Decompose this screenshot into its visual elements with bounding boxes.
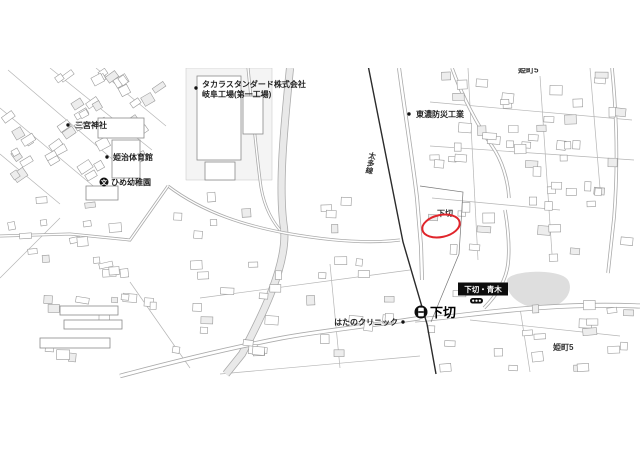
district-label-himecho5: 姫町5: [553, 342, 574, 352]
poi-label-factory-line1: タカラスタンダード株式会社: [202, 79, 306, 89]
train-station-icon: [415, 306, 428, 319]
traffic-signal-icon: [470, 298, 483, 304]
poi-label-gym: 姫治体育館: [113, 152, 153, 162]
district-label-top-clipped: 姫町5: [518, 68, 539, 75]
poi-label-clinic: はたのクリニック: [334, 317, 398, 327]
poi-dot-shrine: [66, 123, 69, 126]
pond: [507, 272, 570, 308]
road-network: [0, 68, 640, 376]
poi-label-shrine: 三宮神社: [75, 120, 107, 130]
district-label-shimogiri: 下切: [437, 208, 453, 218]
railway-name-label: 太多線: [364, 150, 378, 176]
poi-dot-disaster-company: [407, 112, 410, 115]
intersection-sign: 下切・青木: [458, 283, 508, 304]
poi-label-factory-line2: 岐阜工場(第一工場): [202, 89, 272, 99]
highlight-annotation-ellipse: [420, 211, 462, 240]
intersection-sign-text: 下切・青木: [464, 284, 502, 294]
station-name-label: 下切: [430, 305, 456, 320]
poi-dot-gym: [105, 155, 108, 158]
school-icon: 文: [100, 178, 109, 187]
poi-dot-factory: [194, 86, 197, 89]
map-screenshot: 文 タカラスタンダード株式会社 岐阜工場(第一工場) 三宮神社 姫治体育館 ひめ…: [0, 0, 640, 453]
poi-label-kindergarten: ひめ幼稚園: [111, 177, 151, 187]
poi-dot-clinic: [401, 320, 404, 323]
poi-label-disaster-company: 東濃防災工業: [416, 109, 465, 119]
map-canvas[interactable]: 文 タカラスタンダード株式会社 岐阜工場(第一工場) 三宮神社 姫治体育館 ひめ…: [0, 68, 640, 380]
school-icon-glyph: 文: [100, 178, 108, 187]
